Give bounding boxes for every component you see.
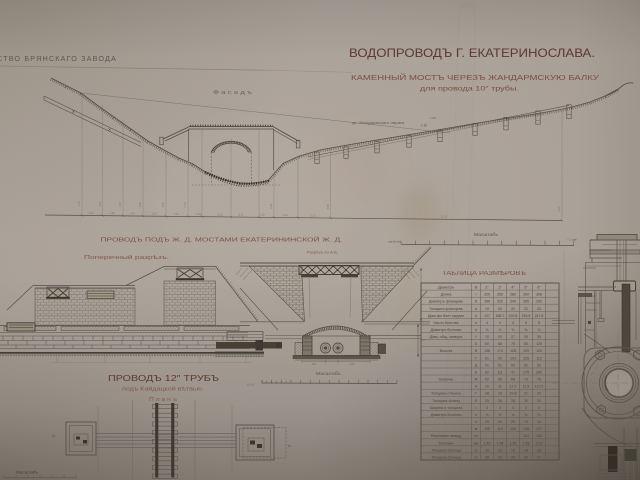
svg-text:3.47: 3.47 bbox=[119, 201, 122, 206]
svg-text:27: 27 bbox=[511, 335, 515, 339]
svg-text:4: 4 bbox=[512, 321, 514, 325]
svg-text:250: 250 bbox=[497, 293, 503, 297]
svg-text:18: 18 bbox=[537, 448, 541, 452]
svg-text:127: 127 bbox=[536, 427, 542, 431]
svg-text:болтами: болтами bbox=[439, 441, 454, 445]
svg-text:110: 110 bbox=[497, 427, 503, 431]
svg-text:Поперечный разрѣзъ.: Поперечный разрѣзъ. bbox=[84, 254, 169, 261]
svg-text:¾: ¾ bbox=[499, 413, 502, 417]
svg-text:1.96: 1.96 bbox=[510, 441, 517, 445]
svg-text:4: 4 bbox=[499, 321, 501, 325]
svg-text:30: 30 bbox=[524, 399, 528, 403]
svg-text:85: 85 bbox=[524, 342, 528, 346]
svg-text:ТАБЛИЦА РАЗМѢРОВЪ: ТАБЛИЦА РАЗМѢРОВЪ bbox=[442, 271, 526, 277]
svg-text:ПРОВОДЪ 12″ ТРУБЪ: ПРОВОДЪ 12″ ТРУБЪ bbox=[108, 374, 219, 383]
svg-text:Г: Г bbox=[475, 392, 477, 396]
svg-text:d: d bbox=[475, 307, 477, 311]
svg-text:280: 280 bbox=[510, 293, 516, 297]
svg-text:75: 75 bbox=[511, 342, 515, 346]
svg-text:27: 27 bbox=[537, 455, 541, 459]
svg-text:18: 18 bbox=[524, 448, 528, 452]
svg-text:19.8: 19.8 bbox=[510, 392, 517, 396]
svg-text:51: 51 bbox=[498, 363, 502, 367]
svg-text:Длина: Длина bbox=[441, 293, 453, 297]
svg-text:Толщина фланца: Толщина фланца bbox=[431, 455, 462, 459]
svg-text:Ширина и толщина: Ширина и толщина bbox=[430, 406, 464, 410]
svg-text:6.40: 6.40 bbox=[270, 203, 273, 208]
svg-text:Масштабъ: Масштабъ bbox=[474, 232, 498, 237]
svg-text:Толщина фланцевъ: Толщина фланцевъ bbox=[429, 307, 463, 311]
svg-text:73: 73 bbox=[524, 378, 528, 382]
svg-text:16: 16 bbox=[537, 420, 541, 424]
svg-text:6.40: 6.40 bbox=[197, 213, 202, 216]
svg-text:74: 74 bbox=[524, 420, 528, 424]
svg-text:n: n bbox=[475, 321, 477, 325]
svg-text:Разрѣзъ по А-Б.: Разрѣзъ по А-Б. bbox=[307, 250, 338, 255]
svg-text:127: 127 bbox=[484, 314, 490, 318]
svg-text:174: 174 bbox=[497, 349, 503, 353]
svg-text:1.98: 1.98 bbox=[523, 441, 530, 445]
svg-text:Ø: Ø bbox=[475, 286, 478, 290]
svg-text:1.10: 1.10 bbox=[89, 212, 94, 215]
svg-text:26: 26 bbox=[511, 420, 515, 424]
svg-text:66: 66 bbox=[498, 342, 502, 346]
svg-text:1.40: 1.40 bbox=[130, 212, 135, 215]
svg-text:¾: ¾ bbox=[525, 413, 528, 417]
svg-text:3: 3 bbox=[538, 406, 540, 410]
svg-text:52: 52 bbox=[524, 363, 528, 367]
svg-text:103: 103 bbox=[510, 356, 516, 360]
svg-text:53: 53 bbox=[511, 363, 515, 367]
svg-text:1.98: 1.98 bbox=[497, 441, 504, 445]
svg-text:112.5: 112.5 bbox=[535, 385, 544, 389]
svg-text:1.88: 1.88 bbox=[430, 116, 436, 120]
svg-text:m: m bbox=[475, 434, 478, 438]
svg-text:19: 19 bbox=[498, 448, 502, 452]
svg-text:10: 10 bbox=[485, 385, 489, 389]
svg-text:247.6: 247.6 bbox=[535, 314, 544, 318]
svg-text:138: 138 bbox=[484, 349, 490, 353]
svg-text:5.05: 5.05 bbox=[162, 202, 165, 207]
svg-text:220: 220 bbox=[484, 293, 490, 297]
svg-text:2.13: 2.13 bbox=[311, 214, 316, 217]
svg-text:подъ Кайдацкой вѣтвью.: подъ Кайдацкой вѣтвью. bbox=[122, 386, 204, 393]
svg-text:26: 26 bbox=[524, 455, 528, 459]
svg-text:21: 21 bbox=[524, 392, 528, 396]
svg-text:23: 23 bbox=[537, 392, 541, 396]
svg-text:3: 3 bbox=[512, 406, 514, 410]
svg-text:Ф а с а д ъ: Ф а с а д ъ bbox=[213, 90, 253, 96]
svg-text:32: 32 bbox=[537, 399, 541, 403]
svg-text:112: 112 bbox=[536, 356, 542, 360]
svg-text:20: 20 bbox=[511, 455, 515, 459]
svg-text:19: 19 bbox=[498, 392, 502, 396]
svg-text:А.: А. bbox=[52, 433, 56, 438]
svg-text:¾: ¾ bbox=[486, 413, 489, 417]
svg-text:¾: ¾ bbox=[538, 413, 541, 417]
svg-text:Діаметръ фланцевъ: Діаметръ фланцевъ bbox=[429, 300, 464, 304]
svg-text:СТВО БРЯНСКАГО ЗАВОДА: СТВО БРЯНСКАГО ЗАВОДА bbox=[0, 56, 117, 63]
svg-text:52: 52 bbox=[485, 378, 489, 382]
svg-text:Высота: Высота bbox=[440, 349, 454, 353]
svg-text:8: 8 bbox=[538, 321, 540, 325]
svg-text:1.10: 1.10 bbox=[283, 214, 288, 217]
svg-text:1.07: 1.07 bbox=[349, 362, 355, 366]
svg-text:Толщина фланца: Толщина фланца bbox=[431, 448, 462, 452]
svg-text:0.5: 0.5 bbox=[421, 338, 425, 342]
svg-text:129: 129 bbox=[523, 349, 529, 353]
svg-text:ПРОВОДЪ ПОДЪ Ж. Д. МОСТАМИ: ПРОВОДЪ ПОДЪ Ж. Д. МОСТАМИ ЕКАТЕРИНИНСКО… bbox=[101, 236, 344, 244]
svg-text:¾: ¾ bbox=[538, 328, 541, 332]
svg-text:41: 41 bbox=[485, 363, 489, 367]
svg-text:47: 47 bbox=[511, 371, 515, 375]
svg-text:Толщина стѣнокъ: Толщина стѣнокъ bbox=[431, 392, 462, 396]
svg-text:b: b bbox=[475, 314, 477, 318]
svg-text:135: 135 bbox=[484, 427, 490, 431]
svg-text:11.5: 11.5 bbox=[523, 385, 530, 389]
svg-text:175: 175 bbox=[523, 371, 529, 375]
svg-text:24: 24 bbox=[498, 420, 502, 424]
svg-text:30: 30 bbox=[524, 335, 528, 339]
svg-text:152: 152 bbox=[536, 349, 542, 353]
svg-text:20: 20 bbox=[485, 420, 489, 424]
svg-text:z: z bbox=[475, 413, 477, 417]
svg-text:Діам фл болт окружн: Діам фл болт окружн bbox=[428, 314, 464, 318]
svg-text:19: 19 bbox=[485, 307, 489, 311]
svg-text:114: 114 bbox=[523, 434, 529, 438]
svg-text:126: 126 bbox=[510, 427, 516, 431]
svg-text:53: 53 bbox=[537, 363, 541, 367]
svg-text:8.53: 8.53 bbox=[327, 204, 330, 209]
svg-text:75: 75 bbox=[537, 378, 541, 382]
svg-text:3: 3 bbox=[525, 406, 527, 410]
svg-text:20: 20 bbox=[485, 455, 489, 459]
svg-text:28: 28 bbox=[511, 399, 515, 403]
svg-text:Масштабъ: Масштабъ bbox=[16, 471, 39, 475]
svg-text:t: t bbox=[476, 406, 477, 410]
svg-text:222: 222 bbox=[497, 300, 503, 304]
svg-text:1.07: 1.07 bbox=[311, 362, 317, 366]
svg-text:¾: ¾ bbox=[486, 328, 489, 332]
svg-text:19: 19 bbox=[511, 448, 515, 452]
svg-text:35: 35 bbox=[537, 335, 541, 339]
svg-text:16: 16 bbox=[485, 448, 489, 452]
svg-text:Разстояніе между: Разстояніе между bbox=[431, 434, 462, 438]
svg-text:190.5: 190.5 bbox=[509, 314, 518, 318]
svg-text:26: 26 bbox=[498, 399, 502, 403]
svg-text:Толщина фланц: Толщина фланц bbox=[432, 399, 460, 403]
svg-text:81: 81 bbox=[485, 356, 489, 360]
svg-text:23.13: 23.13 bbox=[441, 216, 448, 219]
svg-text:20: 20 bbox=[498, 335, 502, 339]
svg-text:25: 25 bbox=[485, 399, 489, 403]
svg-text:ВОДОПРОВОДЪ Г. ЕКАТЕРИНОСЛАВ: ВОДОПРОВОДЪ Г. ЕКАТЕРИНОСЛАВА. bbox=[349, 46, 595, 60]
svg-text:135: 135 bbox=[523, 427, 529, 431]
svg-text:92: 92 bbox=[498, 356, 502, 360]
svg-text:КАМЕННЫЙ МОСТЪ ЧЕРЕЗЪ ЖАНДА: КАМЕННЫЙ МОСТЪ ЧЕРЕЗЪ ЖАНДАРМСКУЮ БАЛКУ bbox=[351, 73, 599, 82]
svg-text:для провода 10″ трубы.: для провода 10″ трубы. bbox=[420, 87, 519, 93]
svg-text:11.3: 11.3 bbox=[510, 385, 517, 389]
svg-text:20: 20 bbox=[498, 307, 502, 311]
svg-text:1.40: 1.40 bbox=[484, 441, 491, 445]
svg-text:d: d bbox=[475, 328, 477, 332]
svg-text:21: 21 bbox=[511, 307, 515, 311]
svg-text:82: 82 bbox=[485, 371, 489, 375]
svg-text:128: 128 bbox=[510, 349, 516, 353]
svg-text:¾: ¾ bbox=[525, 328, 528, 332]
svg-text:f: f bbox=[476, 335, 477, 339]
svg-text:4.32: 4.32 bbox=[139, 202, 142, 207]
svg-text:200: 200 bbox=[536, 371, 542, 375]
svg-text:158.7: 158.7 bbox=[496, 314, 505, 318]
svg-text:3: 3 bbox=[486, 406, 488, 410]
svg-text:290: 290 bbox=[523, 293, 529, 297]
svg-text:¾: ¾ bbox=[512, 328, 515, 332]
svg-text:150: 150 bbox=[484, 300, 490, 304]
svg-text:22: 22 bbox=[524, 307, 528, 311]
svg-text:11: 11 bbox=[498, 385, 502, 389]
svg-text:18: 18 bbox=[485, 392, 489, 396]
svg-text:1.78: 1.78 bbox=[78, 201, 81, 206]
svg-text:П л а н ъ: П л а н ъ bbox=[149, 397, 177, 403]
svg-text:2.02: 2.02 bbox=[536, 441, 543, 445]
svg-text:1.40: 1.40 bbox=[110, 212, 115, 215]
svg-text:5.74: 5.74 bbox=[184, 202, 187, 207]
svg-text:240: 240 bbox=[510, 300, 516, 304]
svg-text:130: 130 bbox=[536, 434, 542, 438]
svg-text:4.10: 4.10 bbox=[558, 206, 561, 211]
svg-text:¾: ¾ bbox=[499, 328, 502, 332]
svg-text:68: 68 bbox=[511, 378, 515, 382]
svg-text:2.13: 2.13 bbox=[218, 213, 223, 216]
svg-text:292: 292 bbox=[536, 300, 542, 304]
svg-text:А.: А. bbox=[288, 443, 292, 448]
svg-text:1.40: 1.40 bbox=[152, 213, 157, 216]
svg-text:111: 111 bbox=[497, 371, 502, 375]
svg-text:Діам, общ. затвора: Діам, общ. затвора bbox=[430, 335, 464, 339]
svg-text:2.60: 2.60 bbox=[99, 201, 102, 206]
svg-text:23: 23 bbox=[537, 307, 541, 311]
svg-text:Масштабъ.: Масштабъ. bbox=[316, 371, 342, 376]
svg-text:мм: мм bbox=[474, 441, 479, 445]
svg-text:10: 10 bbox=[485, 335, 489, 339]
svg-text:Діаметръ болтовъ: Діаметръ болтовъ bbox=[431, 413, 463, 417]
svg-text:4: 4 bbox=[486, 321, 488, 325]
svg-text:¾: ¾ bbox=[512, 413, 515, 417]
svg-text:125: 125 bbox=[523, 356, 529, 360]
svg-text:-1.82: -1.82 bbox=[420, 124, 427, 128]
svg-text:5.17: 5.17 bbox=[239, 214, 244, 217]
svg-text:20: 20 bbox=[498, 455, 502, 459]
svg-text:10 5 0: 10 5 0 bbox=[247, 383, 255, 387]
svg-text:Число болтовъ: Число болтовъ bbox=[433, 321, 459, 325]
svg-text:Ширина: Ширина bbox=[439, 378, 454, 382]
svg-text:m: m bbox=[475, 455, 478, 459]
svg-text:215.9: 215.9 bbox=[522, 314, 531, 318]
svg-text:265: 265 bbox=[523, 300, 529, 304]
svg-text:60: 60 bbox=[485, 342, 489, 346]
svg-text:125: 125 bbox=[536, 342, 542, 346]
svg-text:Діаметръ: Діаметръ bbox=[438, 286, 455, 290]
svg-text:3: 3 bbox=[499, 406, 501, 410]
svg-text:308: 308 bbox=[536, 293, 542, 297]
svg-text:Г: Г bbox=[475, 356, 477, 360]
svg-text:ур. Жандармскаго оврага: ур. Жандармскаго оврага bbox=[352, 121, 404, 125]
svg-text:98: 98 bbox=[498, 378, 502, 382]
svg-text:2.10: 2.10 bbox=[260, 214, 265, 217]
svg-text:8: 8 bbox=[525, 321, 527, 325]
svg-text:d: d bbox=[475, 420, 477, 424]
svg-text:саж 5м 4м: саж 5м 4м bbox=[388, 240, 401, 244]
svg-text:→1 саж: →1 саж bbox=[566, 238, 577, 242]
svg-text:1.40: 1.40 bbox=[174, 213, 179, 216]
